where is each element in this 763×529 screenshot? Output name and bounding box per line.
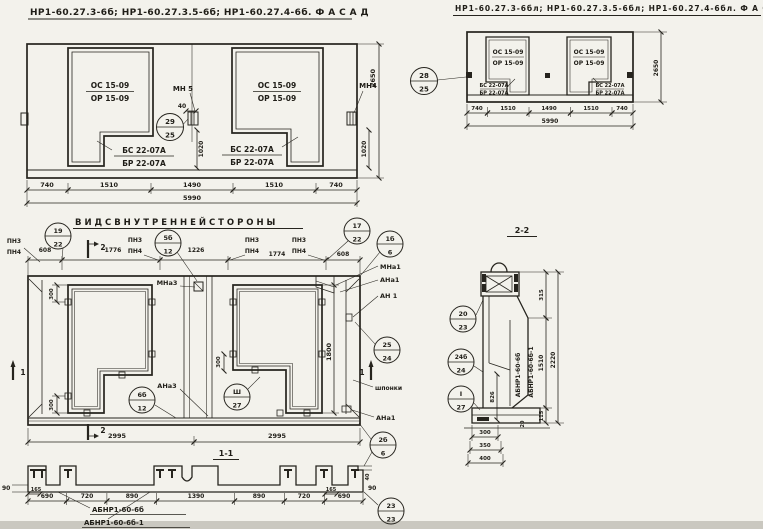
product-mark-1: АБНР1-60-6б xyxy=(515,353,522,398)
callout-25-24: 25 24 xyxy=(355,322,400,363)
dim-115: 115 xyxy=(539,410,545,421)
dim-165: 165 xyxy=(31,487,42,493)
dim-90: 90 xyxy=(368,485,376,492)
callout-sheet: 24 xyxy=(382,355,392,363)
window-mark-bottom: ОР 15-09 xyxy=(258,94,296,103)
callout-pos: I xyxy=(460,390,462,398)
opening-lug xyxy=(277,410,283,416)
dim-20: 20 xyxy=(520,420,526,427)
callout-pos: 5б xyxy=(163,234,173,242)
edge-lug xyxy=(342,406,351,412)
rail-label-pn3: ПН3 xyxy=(7,238,21,245)
section-2-2: 2-2 315 1510 115 2220 826 20 xyxy=(448,226,564,467)
sill-mark-top: БС 22-07А xyxy=(595,83,624,89)
callout-24b-24: 24б 24 xyxy=(448,349,483,375)
callout-pos: 1б xyxy=(385,235,395,243)
callout-pos: 25 xyxy=(382,341,392,349)
sill-mark-bottom: БР 22-07А xyxy=(122,159,166,168)
dim-2220: 2220 xyxy=(550,352,557,369)
dim: 1510 xyxy=(100,181,119,189)
anchor-plate-icon xyxy=(188,112,198,125)
callout-sheet: 27 xyxy=(456,404,465,412)
callout-sheet: 12 xyxy=(137,405,146,413)
facade-left-view: НР1-60.27.3-6б; НР1-60.27.3.5-6б; НР1-60… xyxy=(21,7,384,207)
dim-400: 400 xyxy=(479,456,491,462)
callout-sheet: 22 xyxy=(53,241,62,249)
label-an1: АН 1 xyxy=(380,292,398,300)
window-mark-bottom: ОР 15-09 xyxy=(493,60,524,67)
label-mna1: МНа1 xyxy=(380,263,401,271)
sill-mark-top: БС 22-07А xyxy=(230,145,274,154)
dim-826: 826 xyxy=(490,391,496,403)
sill-mark-top: БС 22-07А xyxy=(122,146,166,155)
dim: 608 xyxy=(39,247,52,254)
section-number: 1 xyxy=(20,368,25,377)
section-marker-2-top: 2 xyxy=(88,240,106,258)
callout-sheet: 27 xyxy=(232,402,241,410)
callout-sheet: 6 xyxy=(388,249,393,257)
rail-label-pn4: ПН4 xyxy=(245,248,259,255)
sill-mark-bottom: БР 22-07А xyxy=(479,91,508,97)
section-1-1-profile xyxy=(28,466,363,492)
dim-2995: 2995 xyxy=(268,432,287,440)
dim: 720 xyxy=(298,493,311,500)
facade-left-title: НР1-60.27.3-6б; НР1-60.27.3.5-6б; НР1-60… xyxy=(30,7,369,18)
sill-mark-top: БС 22-07А xyxy=(479,83,508,89)
anchor-square-icon xyxy=(466,72,472,78)
window-mark-top: ОС 15-09 xyxy=(258,81,296,90)
dim-total: 5990 xyxy=(183,194,202,202)
callout-2b-6: 2б 6 xyxy=(359,423,396,466)
label-ana3: АНа3 xyxy=(157,382,176,390)
anchor-mn5: МН 5 40 xyxy=(173,85,198,125)
rail-label-pn3: ПН3 xyxy=(128,237,142,244)
anchor-label: МН 5 xyxy=(173,85,193,93)
callout-pos: 19 xyxy=(53,227,63,235)
dim-300: 300 xyxy=(49,288,55,300)
inner-view-title: В И Д С В Н У Т Р Е Н Н Е Й С Т О Р О Н … xyxy=(75,216,276,228)
rail-label-pn3: ПН3 xyxy=(245,237,259,244)
top-anchor-box xyxy=(481,272,519,296)
product-mark-2: АБНР1-60-6б-1 xyxy=(528,346,535,397)
callout-pos: 29 xyxy=(165,118,175,126)
anchor-mn4: МН4 xyxy=(347,82,377,125)
callout-sh-27: Ш 27 xyxy=(224,377,260,410)
dim-total: 5990 xyxy=(542,118,559,125)
rail-label-pn4: ПН4 xyxy=(292,248,306,255)
dim-40: 40 xyxy=(178,103,186,110)
dim: 890 xyxy=(253,493,266,500)
section-number: 2 xyxy=(100,426,105,435)
dim: 740 xyxy=(471,106,483,112)
callout-pos: 6б xyxy=(137,391,147,399)
section-1-1: 1-1 690 720 890 1390 890 720 690 165 165… xyxy=(2,449,404,528)
label-ana1-bottom: АНа1 xyxy=(376,414,396,422)
dim: 740 xyxy=(616,106,628,112)
section-2-2-title: 2-2 xyxy=(515,226,529,235)
dim-height: 2650 xyxy=(653,60,660,77)
anchor-square-icon xyxy=(627,72,633,78)
label-shponki: шпонки xyxy=(375,385,402,392)
sill-mark-bottom: БР 22-07А xyxy=(595,91,624,97)
dim-1800: 1800 xyxy=(325,342,333,361)
callout-20-23: 20 23 xyxy=(450,300,483,332)
dim-165: 165 xyxy=(326,487,337,493)
drawing-sheet: НР1-60.27.3-6б; НР1-60.27.3.5-6б; НР1-60… xyxy=(0,0,763,529)
dim: 1490 xyxy=(183,181,202,189)
dim-315: 315 xyxy=(539,289,545,301)
dim-2995: 2995 xyxy=(108,432,127,440)
dim: 890 xyxy=(126,493,139,500)
section-number: 1 xyxy=(359,368,364,377)
callout-sheet: 23 xyxy=(386,516,395,524)
window-mark-bottom: ОР 15-09 xyxy=(574,60,605,67)
rail-label-pn3: ПН3 xyxy=(292,237,306,244)
dim-40: 40 xyxy=(365,473,371,480)
dim-300: 300 xyxy=(216,356,222,368)
callout-sheet: 24 xyxy=(456,367,466,375)
callout-sheet: 25 xyxy=(165,132,175,140)
dim-1020-left: 1020 xyxy=(198,141,205,158)
dim-1020-right: 1020 xyxy=(361,141,368,158)
window-mark-bottom: ОР 15-09 xyxy=(91,94,129,103)
facade-right-title: НР1-60.27.3-6бл; НР1-60.27.3.5-6бл; НР1-… xyxy=(455,4,763,13)
window-mark-top: ОС 15-09 xyxy=(91,81,129,90)
callout-pos: 17 xyxy=(352,222,361,230)
lifting-loop-icon xyxy=(491,263,507,272)
dim: 690 xyxy=(338,493,351,500)
anchor-plate-icon xyxy=(347,112,356,125)
facade-right-view: НР1-60.27.3-6бл; НР1-60.27.3.5-6бл; НР1-… xyxy=(411,4,763,130)
dim: 740 xyxy=(40,181,54,189)
section-marker-1-right: 1 xyxy=(359,360,373,380)
callout-29-25: 29 25 xyxy=(157,114,189,141)
facade-left-bottom-dims: 740 1510 1490 1510 740 5990 xyxy=(27,180,357,207)
sill-mark-bottom: БР 22-07А xyxy=(230,158,274,167)
product-mark-2: АБНР1-60-6б-1 xyxy=(84,519,144,527)
section-number: 2 xyxy=(100,243,105,252)
callout-pos: 20 xyxy=(458,310,468,318)
callout-5b-12: 5б 12 xyxy=(155,230,197,281)
callout-sheet: 12 xyxy=(163,248,172,256)
callout-23-23: 23 23 xyxy=(364,492,404,524)
dim: 1510 xyxy=(583,106,598,112)
inner-side-view: В И Д С В Н У Т Р Е Н Н Е Й С Т О Р О Н … xyxy=(7,216,403,466)
dim-90: 90 xyxy=(2,485,10,492)
callout-sheet: 25 xyxy=(419,86,429,94)
dim-300: 300 xyxy=(49,399,55,411)
dim: 690 xyxy=(41,493,54,500)
product-mark-1: АБНР1-60-6б xyxy=(92,506,144,514)
dim-height: 2650 xyxy=(369,68,377,87)
dim: 1226 xyxy=(188,247,205,254)
dim: 1490 xyxy=(541,106,556,112)
callout-6b-12: 6б 12 xyxy=(129,387,176,418)
dim-350: 350 xyxy=(479,443,491,449)
callout-pos: 2б xyxy=(378,436,388,444)
window-mark-top: ОС 15-09 xyxy=(493,49,524,56)
dim: 1774 xyxy=(269,251,286,258)
section-marker-2-bottom: 2 xyxy=(88,424,106,440)
rail-label-pn4: ПН4 xyxy=(128,248,142,255)
callout-sheet: 22 xyxy=(352,236,361,244)
dim: 1510 xyxy=(500,106,515,112)
section-marker-1-left: 1 xyxy=(11,360,26,380)
section-1-1-title: 1-1 xyxy=(219,449,234,458)
edge-lug xyxy=(346,314,352,321)
callout-pos: 24б xyxy=(455,354,468,361)
dim-300: 300 xyxy=(479,430,491,436)
label-mna3: МНа3 xyxy=(157,279,178,287)
callout-28-25: 28 25 xyxy=(411,68,467,95)
callout-pos: 28 xyxy=(419,72,429,80)
callout-sheet: 23 xyxy=(458,324,467,332)
callout-pos: Ш xyxy=(233,388,241,396)
rail-label-pn4: ПН4 xyxy=(7,249,21,256)
window-mark-top: ОС 15-09 xyxy=(574,49,605,56)
inner-top-dims: 608 1776 1226 1774 608 xyxy=(28,247,360,276)
callout-pos: 23 xyxy=(386,502,395,510)
dim: 740 xyxy=(329,181,343,189)
anchor-plate-glyphs xyxy=(30,469,359,478)
facade-right-opening-1: ОС 15-09 ОР 15-09 БС 22-07А БР 22-07А xyxy=(479,37,529,97)
callout-sheet: 6 xyxy=(381,450,386,458)
facade-right-opening-2: ОС 15-09 ОР 15-09 БС 22-07А БР 22-07А xyxy=(567,37,625,97)
dim-1510: 1510 xyxy=(538,355,545,372)
facade-left-opening-2: ОС 15-09 ОР 15-09 БС 22-07А БР 22-07А xyxy=(222,48,323,167)
dim: 1776 xyxy=(105,247,122,254)
facade-left-opening-1: ОС 15-09 ОР 15-09 БС 22-07А БР 22-07А xyxy=(68,48,174,168)
panel-drawing: НР1-60.27.3-6б; НР1-60.27.3.5-6б; НР1-60… xyxy=(0,0,763,529)
dim: 608 xyxy=(337,251,350,258)
dim: 1390 xyxy=(188,493,205,500)
dim: 1510 xyxy=(265,181,284,189)
dim: 720 xyxy=(81,493,94,500)
label-ana1: АНа1 xyxy=(380,276,400,284)
inner-bottom-dims: 2995 2995 xyxy=(28,428,360,446)
anchor-square-icon xyxy=(545,73,550,78)
facade-right-bottom-dims: 740 1510 1490 1510 740 5990 xyxy=(467,104,633,130)
inner-opening-2 xyxy=(230,285,325,416)
